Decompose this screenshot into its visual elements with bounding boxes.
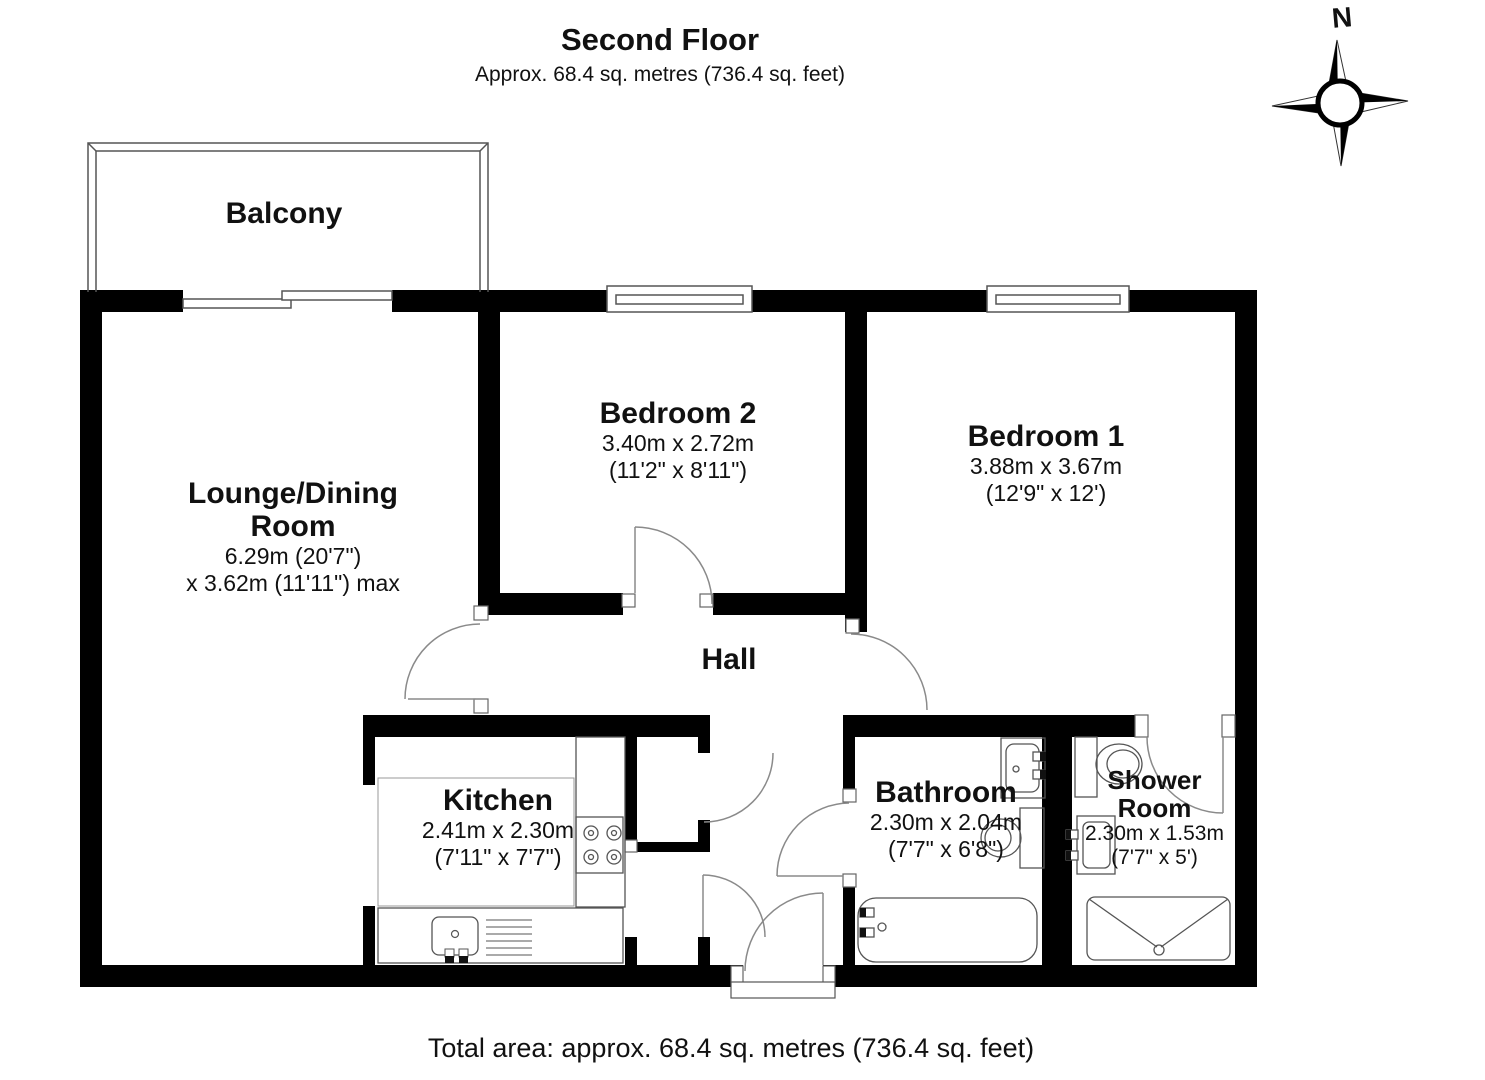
total-area-text: Total area: approx. 68.4 sq. metres (736… <box>331 1032 1131 1064</box>
page-title: Second Floor <box>315 22 1005 58</box>
kitchen-sink-icon <box>432 917 478 963</box>
window-bedroom1 <box>987 286 1129 312</box>
room-label-hall: Hall <box>629 643 829 676</box>
room-name: Hall <box>629 643 829 676</box>
room-dims-imperial: x 3.62m (11'11") max <box>118 570 468 597</box>
room-dims-imperial: (7'11" x 7'7") <box>368 844 628 871</box>
door-arc-cupboard-upper <box>704 753 773 822</box>
compass-icon <box>1272 40 1408 166</box>
room-name: Shower <box>1072 766 1237 794</box>
door-arc-bedroom2 <box>635 527 712 604</box>
room-dims-imperial: (11'2" x 8'11") <box>528 457 828 484</box>
room-dims-metric: 6.29m (20'7") <box>118 543 468 570</box>
room-dims-metric: 2.30m x 1.53m <box>1072 822 1237 846</box>
room-dims-imperial: (12'9" x 12') <box>896 480 1196 507</box>
plan-title-block: Second Floor Approx. 68.4 sq. metres (73… <box>315 22 1005 88</box>
room-dims-imperial: (7'7" x 6'8") <box>796 836 1096 863</box>
door-arc-bedroom1 <box>851 634 927 710</box>
room-label-shower-room: Shower Room 2.30m x 1.53m (7'7" x 5') <box>1072 766 1237 870</box>
sliding-door <box>183 291 392 308</box>
room-label-bathroom: Bathroom 2.30m x 2.04m (7'7" x 6'8") <box>796 776 1096 863</box>
window-bedroom2 <box>607 286 752 312</box>
drainer-icon <box>486 920 532 955</box>
page-subtitle: Approx. 68.4 sq. metres (736.4 sq. feet) <box>315 62 1005 88</box>
compass-north-label: N <box>1319 0 1366 36</box>
room-dims-metric: 2.30m x 2.04m <box>796 809 1096 836</box>
room-label-lounge: Lounge/Dining Room 6.29m (20'7") x 3.62m… <box>118 477 468 597</box>
floorplan-page: Second Floor Approx. 68.4 sq. metres (73… <box>0 0 1485 1080</box>
door-arc-cupboard-lower <box>703 875 765 937</box>
room-label-bedroom2: Bedroom 2 3.40m x 2.72m (11'2" x 8'11") <box>528 397 828 484</box>
room-name: Room <box>1072 794 1237 822</box>
room-label-bedroom1: Bedroom 1 3.88m x 3.67m (12'9" x 12') <box>896 420 1196 507</box>
room-name: Room <box>118 510 468 543</box>
room-dims-imperial: (7'7" x 5') <box>1072 846 1237 870</box>
room-dims-metric: 3.88m x 3.67m <box>896 453 1196 480</box>
room-label-balcony: Balcony <box>134 197 434 230</box>
room-label-kitchen: Kitchen 2.41m x 2.30m (7'11" x 7'7") <box>368 784 628 871</box>
walls-group <box>80 290 1257 987</box>
door-arc-lounge-hall <box>405 624 480 699</box>
room-name: Balcony <box>134 197 434 230</box>
room-name: Lounge/Dining <box>118 477 468 510</box>
room-dims-metric: 2.41m x 2.30m <box>368 817 628 844</box>
front-door-recess <box>731 982 835 998</box>
room-name: Kitchen <box>368 784 628 817</box>
room-name: Bedroom 1 <box>896 420 1196 453</box>
room-dims-metric: 3.40m x 2.72m <box>528 430 828 457</box>
bathtub-icon <box>858 898 1037 962</box>
room-name: Bedroom 2 <box>528 397 828 430</box>
room-name: Bathroom <box>796 776 1096 809</box>
shower-tray-icon <box>1087 897 1230 960</box>
